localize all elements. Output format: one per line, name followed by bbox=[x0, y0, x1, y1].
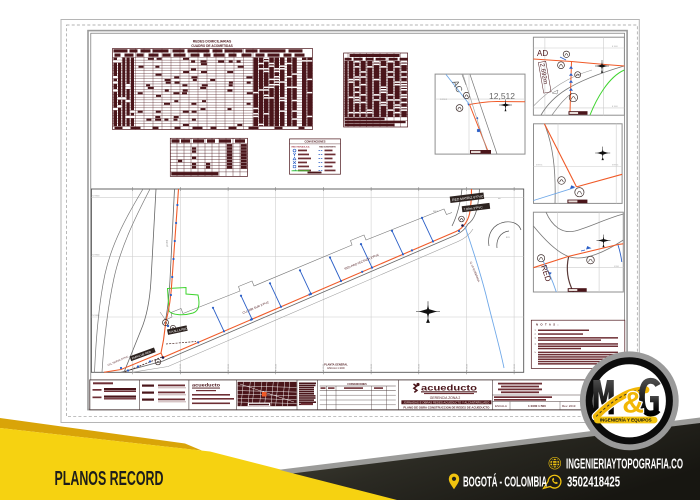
svg-text:BOGOTÁ - COLOMBIA: BOGOTÁ - COLOMBIA bbox=[463, 473, 547, 490]
svg-text:E 99500: E 99500 bbox=[276, 364, 278, 371]
svg-text:PLANOS RECORD: PLANOS RECORD bbox=[55, 467, 164, 490]
svg-text:N 99800: N 99800 bbox=[92, 255, 99, 257]
svg-text:KR 97: KR 97 bbox=[165, 240, 169, 248]
svg-text:N O T A S :: N O T A S : bbox=[536, 322, 559, 326]
svg-text:E 99500: E 99500 bbox=[419, 364, 421, 371]
svg-text:INGENIERIAYTOPOGRAFIA.CO: INGENIERIAYTOPOGRAFIA.CO bbox=[566, 455, 683, 472]
svg-text:E 99500: E 99500 bbox=[514, 364, 516, 371]
svg-text:ESCALA 1:1000: ESCALA 1:1000 bbox=[327, 367, 345, 370]
svg-text:JORNADAS E OBRAS REDES ACUEDUC: JORNADAS E OBRAS REDES ACUEDUCTO Y ALCAN… bbox=[403, 400, 489, 404]
svg-text:CUADRO DE ACOMETIDAS: CUADRO DE ACOMETIDAS bbox=[191, 44, 233, 48]
svg-text:E 99500: E 99500 bbox=[466, 364, 468, 371]
svg-text:3502418425: 3502418425 bbox=[567, 474, 620, 491]
svg-text:PLANO DE OBRA CONSTRUCCION DE: PLANO DE OBRA CONSTRUCCION DE REDES DE A… bbox=[403, 405, 490, 409]
svg-text:N 997.6: N 997.6 bbox=[536, 165, 542, 167]
svg-text:12,512: 12,512 bbox=[489, 91, 515, 101]
svg-text:N 997.6: N 997.6 bbox=[612, 165, 618, 167]
svg-text:RED EXISTENTE: RED EXISTENTE bbox=[319, 146, 336, 148]
svg-text:E 99500: E 99500 bbox=[228, 364, 230, 371]
svg-text:Rev. 2019: Rev. 2019 bbox=[562, 404, 576, 408]
svg-text:GERENCIA ZONA 2: GERENCIA ZONA 2 bbox=[430, 396, 461, 400]
svg-text:CONVENCIONES: CONVENCIONES bbox=[347, 383, 367, 386]
svg-text:ESCALA: ESCALA bbox=[495, 404, 507, 408]
svg-text:CONVENCIONES: CONVENCIONES bbox=[304, 140, 325, 144]
svg-text:E 99500: E 99500 bbox=[371, 364, 373, 371]
svg-text:AD: AD bbox=[537, 49, 548, 58]
svg-text:1:1000 1:500: 1:1000 1:500 bbox=[528, 404, 546, 408]
svg-text:RED HIDRAULICA: RED HIDRAULICA bbox=[292, 145, 310, 148]
svg-text:INGENIERÍA Y EQUIPOS: INGENIERÍA Y EQUIPOS bbox=[600, 416, 652, 423]
svg-text:E 1000: E 1000 bbox=[612, 46, 618, 48]
svg-text:&: & bbox=[622, 387, 644, 420]
svg-text:N 996: N 996 bbox=[614, 266, 619, 268]
svg-text:N 99800: N 99800 bbox=[92, 196, 99, 198]
svg-text:acueducto: acueducto bbox=[192, 383, 220, 388]
svg-text:acueducto: acueducto bbox=[421, 384, 477, 393]
svg-text:E 99500: E 99500 bbox=[180, 364, 182, 371]
svg-text:E 1000: E 1000 bbox=[612, 106, 618, 108]
svg-text:KR 9: KR 9 bbox=[433, 211, 439, 213]
svg-text:N 998.5: N 998.5 bbox=[440, 99, 448, 101]
